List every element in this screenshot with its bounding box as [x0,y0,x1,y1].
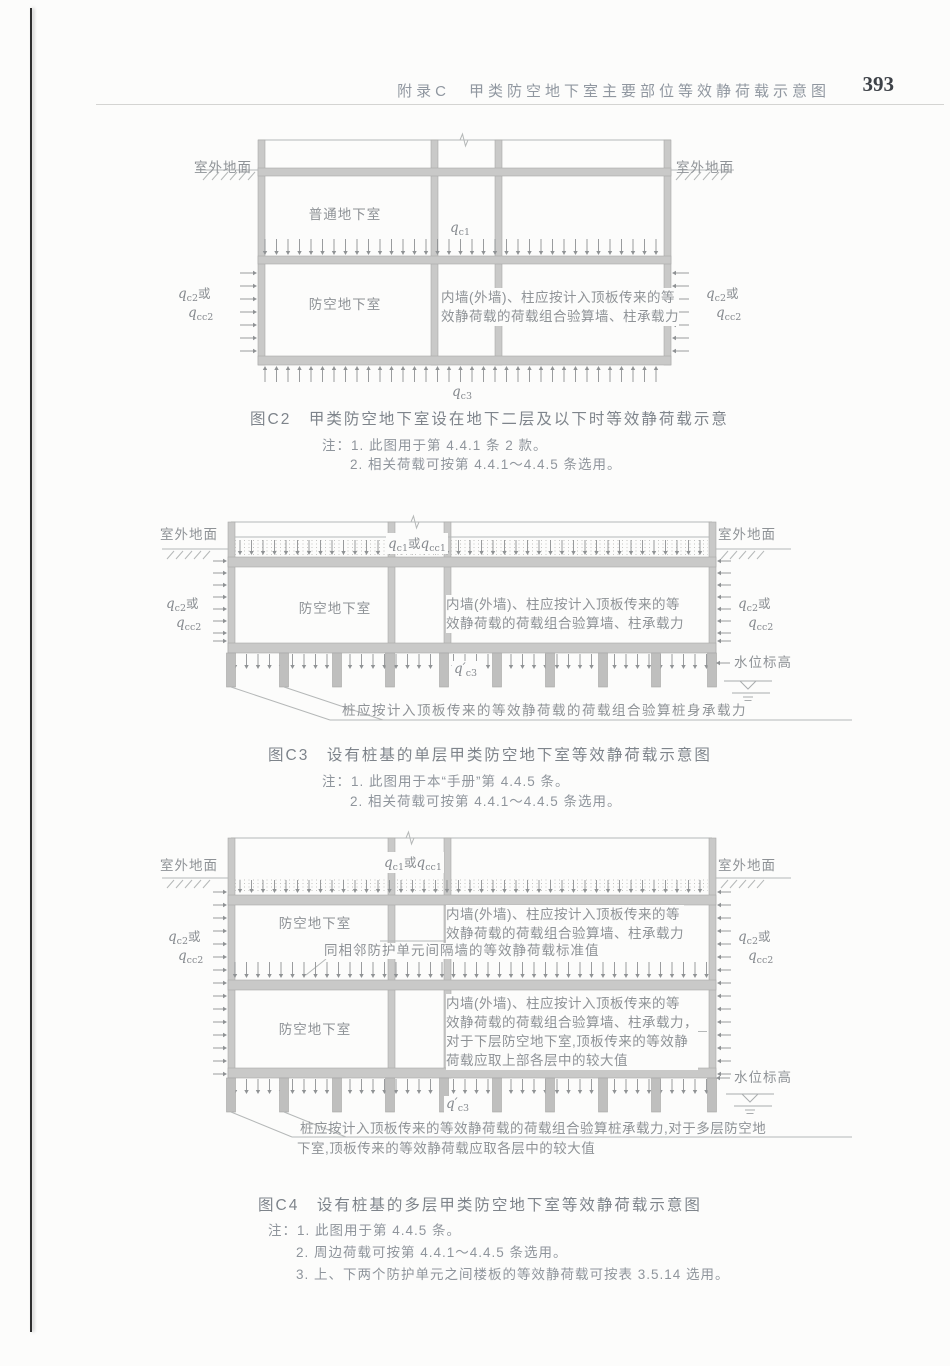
fig-c2-load-label-qc2-right: qc2或 [706,283,739,304]
fig-c3-defense-basement-label: 防空地下室 [275,601,395,617]
fig-c4-load-label-qc3-prime: q′c3 [444,1096,471,1114]
figure-c4-shapes [162,832,852,1137]
fig-c4-note-2: 2. 周边荷载可按第 4.4.1～4.4.5 条选用。 [296,1241,568,1261]
fig-c2-defense-basement-label: 防空地下室 [283,297,407,313]
fig-c2-note-1: 注：1. 此图用于第 4.4.1 条 2 款。 [322,434,548,454]
fig-c3-ground-label-left: 室外地面 [160,527,218,543]
fig-c4-lower-wall-note-line2: 效静荷载的荷载组合验算墙、柱承载力， [446,1013,698,1032]
fig-c3-load-label-qcc2-right: qcc2 [748,615,773,633]
fig-c3-wall-note-line1: 内墙(外墙)、柱应按计入顶板传来的等 [446,595,684,614]
fig-c3-wall-note-line2: 效静荷载的荷载组合验算墙、柱承载力 [446,614,684,633]
fig-c4-upper-wall-note-line2: 效静荷载的荷载组合验算墙、柱承载力 [446,924,684,943]
fig-c4-lower-wall-note-line1: 内墙(外墙)、柱应按计入顶板传来的等 [446,994,698,1013]
fig-c3-load-label-qcc2-left: qcc2 [176,615,201,633]
fig-c3-wall-note: 内墙(外墙)、柱应按计入顶板传来的等 效静荷载的荷载组合验算墙、柱承载力 [446,595,684,633]
fig-c4-upper-wall-note-line1: 内墙(外墙)、柱应按计入顶板传来的等 [446,905,684,924]
header-rule [96,104,944,105]
fig-c2-ordinary-basement-label: 普通地下室 [283,207,407,223]
fig-c3-water-level-label: 水位标高 [734,655,792,671]
fig-c2-wall-note-line2: 效静荷载的荷载组合验算墙、柱承载力 [441,307,679,326]
figure-c2: 室外地面 室外地面 普通地下室 qc1 防空地下室 内墙(外墙)、柱应按计入顶板… [150,125,810,405]
fig-c3-load-label-qc3-prime: q′c3 [452,661,479,679]
fig-c4-ground-label-left: 室外地面 [160,858,218,874]
fig-c4-note-1: 注：1. 此图用于第 4.4.5 条。 [268,1219,461,1239]
fig-c3-note-2: 2. 相关荷载可按第 4.4.1～4.4.5 条选用。 [350,790,622,810]
fig-c4-load-label-qcc2-left: qcc2 [178,948,203,966]
fig-c4-pile-note-line1: 桩应按计入顶板传来的等效静荷载的荷载组合验算桩承载力,对于多层防空地 [300,1121,766,1137]
fig-c3-load-label-qc1-or-qcc1: qc1或qcc1 [386,533,448,554]
fig-c4-lower-wall-note-line3: 对于下层防空地下室,顶板传来的等效静 [446,1032,698,1051]
fig-c4-water-level-label: 水位标高 [734,1070,792,1086]
fig-c3-note-1: 注：1. 此图用于本“手册”第 4.4.5 条。 [322,770,570,790]
fig-c4-defense-basement-label-upper: 防空地下室 [250,916,380,932]
fig-c3-load-label-qc2-right: qc2或 [738,593,771,614]
fig-c4-load-label-qc2-left: qc2或 [168,926,201,947]
book-binding-edge [30,8,32,1332]
fig-c4-defense-basement-label-lower: 防空地下室 [250,1022,380,1038]
fig-c4-note-3: 3. 上、下两个防护单元之间楼板的等效静荷载可按表 3.5.14 选用。 [296,1263,730,1283]
fig-c2-load-label-qcc2-left: qcc2 [188,305,213,323]
page-header-title: 附录C 甲类防空地下室主要部位等效静荷载示意图 [397,80,830,101]
fig-c3-ground-label-right: 室外地面 [718,527,776,543]
fig-c2-load-label-qc1: qc1 [448,220,472,238]
fig-c2-ground-label-left: 室外地面 [194,160,252,176]
fig-c2-note-2: 2. 相关荷载可按第 4.4.1～4.4.5 条选用。 [350,453,622,473]
document-page: 附录C 甲类防空地下室主要部位等效静荷载示意图 393 室外地面 室外地面 普通… [0,0,950,1366]
figure-c4: qc1或qcc1 室外地面 室外地面 防空地下室 内墙(外墙)、柱应按计入顶板传… [150,828,860,1173]
figure-c2-shapes [196,134,734,382]
fig-c2-load-label-qcc2-right: qcc2 [716,305,741,323]
fig-c3-load-label-qc2-left: qc2或 [166,593,199,614]
fig-c4-caption: 图C4 设有桩基的多层甲类防空地下室等效静荷载示意图 [258,1193,702,1215]
fig-c4-load-label-qc1-or-qcc1: qc1或qcc1 [382,852,444,873]
fig-c2-load-label-qc3: qc3 [450,384,474,402]
fig-c4-pile-note-line2: 下室,顶板传来的等效静荷载应取各层中的较大值 [297,1141,595,1157]
fig-c3-pile-note: 桩应按计入顶板传来的等效静荷载的荷载组合验算桩身承载力 [342,703,747,719]
fig-c4-lower-wall-note: 内墙(外墙)、柱应按计入顶板传来的等 效静荷载的荷载组合验算墙、柱承载力， 对于… [446,994,698,1070]
fig-c2-load-label-qc2-left: qc2或 [178,283,211,304]
fig-c4-upper-wall-note: 内墙(外墙)、柱应按计入顶板传来的等 效静荷载的荷载组合验算墙、柱承载力 [446,905,684,943]
fig-c4-ground-label-right: 室外地面 [718,858,776,874]
fig-c4-lower-wall-note-line4: 荷载应取上部各层中的较大值 [446,1051,698,1070]
fig-c2-wall-note-line1: 内墙(外墙)、柱应按计入顶板传来的等 [441,288,679,307]
fig-c4-load-label-qc2-right: qc2或 [738,926,771,947]
fig-c4-partition-note: 同相邻防护单元间隔墙的等效静荷载标准值 [322,943,602,959]
figure-c3: 室外地面 室外地面 qc1或qcc1 防空地下室 内墙(外墙)、柱应按计入顶板传… [150,495,860,740]
fig-c2-wall-note: 内墙(外墙)、柱应按计入顶板传来的等 效静荷载的荷载组合验算墙、柱承载力 [441,288,679,326]
fig-c2-ground-label-right: 室外地面 [676,160,734,176]
fig-c4-load-label-qcc2-right: qcc2 [748,948,773,966]
page-number: 393 [863,72,895,97]
fig-c3-caption: 图C3 设有桩基的单层甲类防空地下室等效静荷载示意图 [268,743,712,765]
fig-c2-caption: 图C2 甲类防空地下室设在地下二层及以下时等效静荷载示意 [250,407,729,429]
